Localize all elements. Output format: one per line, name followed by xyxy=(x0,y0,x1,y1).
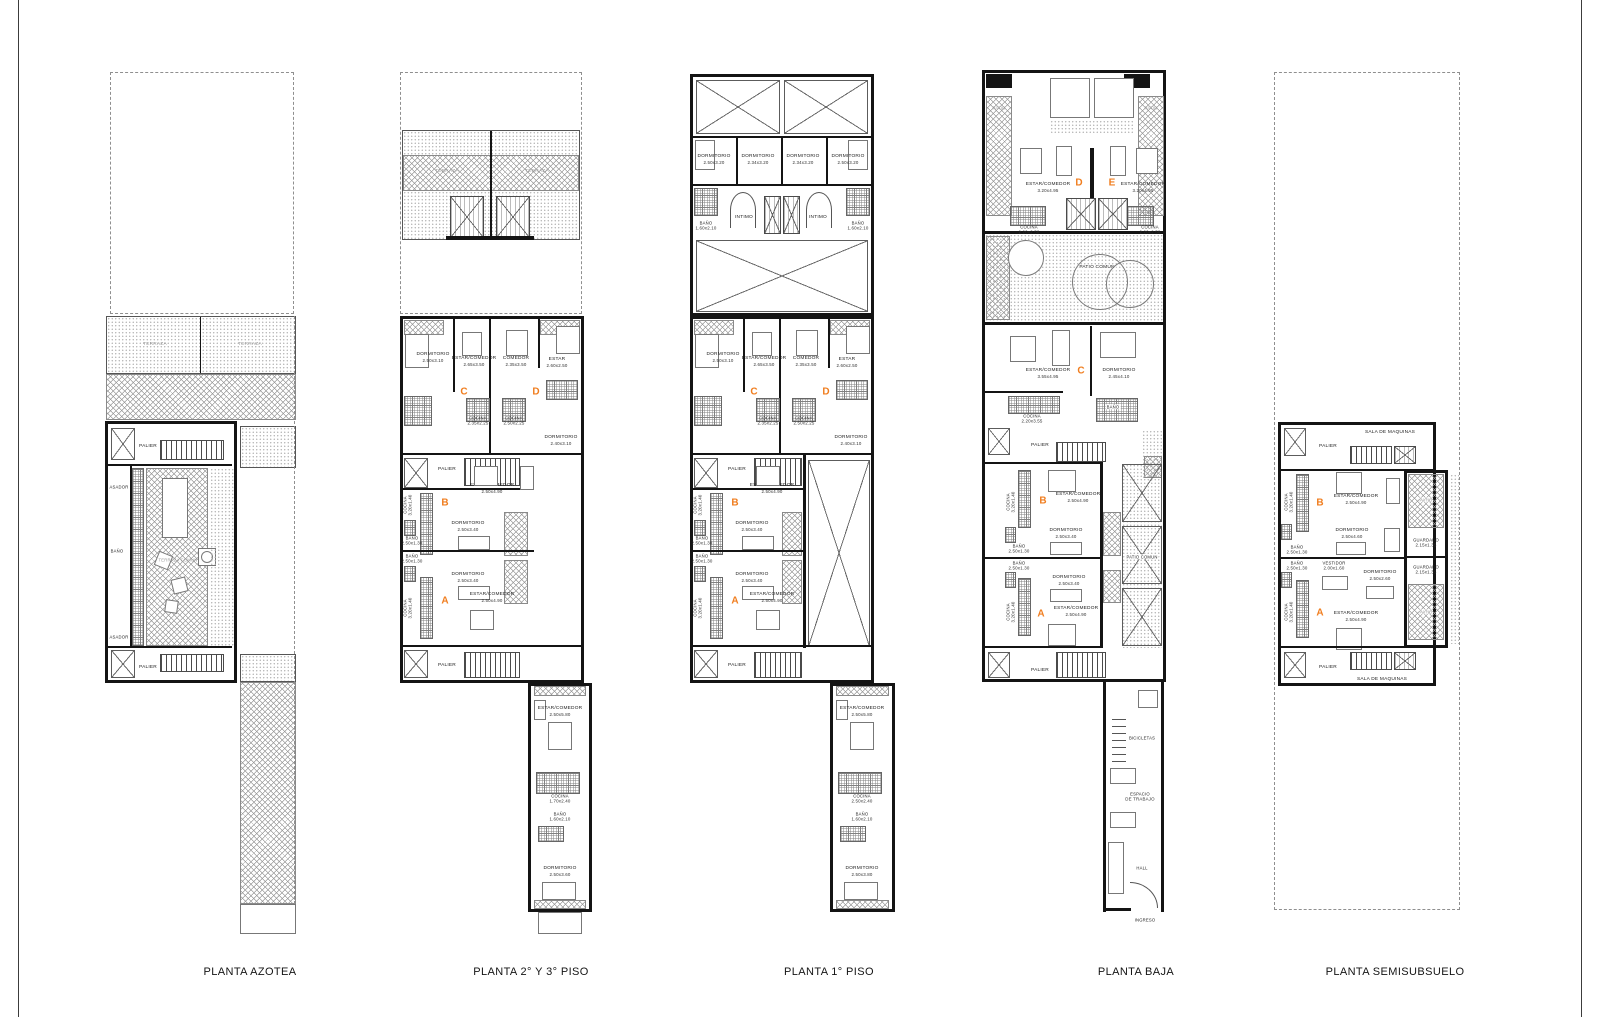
wall xyxy=(1103,682,1106,912)
room-label-patio: PATIO xyxy=(1420,609,1433,614)
room-label-patio: PATIO xyxy=(1420,497,1433,502)
unit-letter-c: C xyxy=(460,387,467,398)
bathroom-fixtures xyxy=(1281,572,1292,588)
room-label-terraza: TERRAZA xyxy=(143,342,167,348)
room-label-banio: BAÑO2.50x1.30 xyxy=(1008,543,1029,554)
room-label-dormitorio: DORMITORIO2.50x3.40 xyxy=(735,572,768,584)
bathroom-fixtures xyxy=(1096,398,1138,422)
furniture-table xyxy=(1048,624,1076,646)
bathroom-fixtures xyxy=(694,520,706,536)
room-label-estar-comedor: ESTAR/COMEDOR3.20x4.95 xyxy=(1121,182,1166,194)
room-label-banio: BAÑO1.60x2.10 xyxy=(695,220,716,231)
stair-core xyxy=(764,196,781,234)
room-label-palier: PALIER xyxy=(438,663,456,669)
pergola-brace xyxy=(1122,588,1162,646)
lightwell xyxy=(1094,78,1134,118)
stair-core xyxy=(1066,198,1096,230)
furniture-sofa xyxy=(1056,146,1072,176)
lightwell xyxy=(1050,78,1090,118)
kitchen-counter xyxy=(1296,474,1309,532)
room-label-palier: PALIER xyxy=(1031,443,1049,449)
room-label-cocina: COCINA2.35x2.25 xyxy=(467,415,488,426)
room-label-cocina: COCINA3.20x1.40 xyxy=(1005,601,1016,622)
lot-boundary xyxy=(110,72,294,314)
furniture-table xyxy=(1010,336,1036,362)
room-label-palier: PALIER xyxy=(438,467,456,473)
wall xyxy=(985,646,1102,648)
drawing-sheet: TERRAZA TERRAZA PALIER ASADOR BAÑO ASADO… xyxy=(0,0,1600,1017)
wall xyxy=(1161,682,1164,912)
tree xyxy=(1106,260,1154,308)
wall xyxy=(1281,557,1405,559)
room-label-banio: BAÑO1.60x2.10 xyxy=(851,811,872,822)
stairs xyxy=(464,652,520,678)
room-label-cocina: COCINA3.20x1.40 xyxy=(1283,601,1294,622)
room-label-dormitorio: DORMITORIO2.45x4.10 xyxy=(1102,368,1135,380)
elevator xyxy=(111,650,135,678)
curved-wall xyxy=(806,192,832,228)
room-label-dormitorio: DORMITORIO2.50x2.60 xyxy=(1363,570,1396,582)
room-label-banio: BAÑO2.50x1.30 xyxy=(691,535,712,546)
door-swing xyxy=(1130,882,1158,908)
unit-letter-d: D xyxy=(822,387,829,398)
bathroom-fixtures xyxy=(694,396,722,426)
balcony-hatch xyxy=(534,900,586,909)
wall xyxy=(446,236,534,240)
room-label-palier: PALIER xyxy=(728,467,746,473)
balcony-hatch xyxy=(694,320,734,335)
room-label-dormitorio: DORMITORIO2.50x3.40 xyxy=(451,521,484,533)
room-label-estar-comedor: ESTAR/COMEDOR2.50x4.90 xyxy=(750,592,795,604)
bathroom-fixtures xyxy=(546,380,578,400)
room-label-dormitorio: DORMITORIO2.50x3.10 xyxy=(706,352,739,364)
bathroom-fixtures xyxy=(836,380,868,400)
tree xyxy=(1008,240,1044,276)
room-label-dormitorio: DORMITORIO2.50x3.40 xyxy=(1049,528,1082,540)
room-label-dormitorio: DORMITORIO2.50x3.40 xyxy=(735,521,768,533)
elevator xyxy=(1284,428,1306,456)
kitchen-counter xyxy=(420,577,433,639)
room-label-cocina: COCINA3.20x1.40 xyxy=(692,597,703,618)
room-label-terraza: TERRAZA xyxy=(238,342,262,348)
hatch-region xyxy=(106,374,296,420)
kitchen-counter xyxy=(838,772,882,794)
stair-core xyxy=(1394,652,1416,670)
bathroom-fixtures xyxy=(694,188,718,216)
room-label-terraza: TERRAZA xyxy=(435,169,459,175)
furniture-table xyxy=(470,610,494,630)
wall xyxy=(985,462,1103,464)
room-label-asador: ASADOR xyxy=(110,634,129,639)
room-label-palier: PALIER xyxy=(139,665,157,671)
unit-letter-d: D xyxy=(1075,178,1082,189)
room-label-estar-comedor: ESTAR/COMEDOR2.50x4.90 xyxy=(1056,492,1101,504)
wall xyxy=(1281,646,1433,648)
room-label-patio-comun: PATIO COMUN xyxy=(1125,554,1158,559)
furniture-table xyxy=(1136,148,1158,174)
bathroom-fixtures xyxy=(694,566,706,582)
furniture-table xyxy=(796,330,818,356)
furniture-sofa xyxy=(556,326,580,354)
plan-title-baja: PLANTA BAJA xyxy=(1098,966,1174,978)
elevator xyxy=(111,428,135,460)
room-label-intimo: INTIMO xyxy=(735,215,753,221)
furniture-table xyxy=(548,722,572,750)
unit-letter-c: C xyxy=(1077,366,1084,377)
room-label-estar-comedor: ESTAR/COMEDOR2.50x4.90 xyxy=(470,592,515,604)
furniture-table xyxy=(474,466,498,486)
unit-letter-b: B xyxy=(1039,496,1046,507)
room-label-dormitorio: DORMITORIO2.50x3.40 xyxy=(1052,575,1085,587)
room-label-dormitorio: DORMITORIO2.50x3.20 xyxy=(697,154,730,166)
wall xyxy=(489,318,491,455)
lot-boundary xyxy=(294,316,295,904)
room-label-cocina: COCINA2.20x3.55 xyxy=(1021,413,1042,424)
room-label-cocina: COCINA3.20x1.40 xyxy=(692,494,703,515)
room-label-dormitorio: DORMITORIO2.50x3.20 xyxy=(831,154,864,166)
room-label-comedor: COMEDOR2.35x3.50 xyxy=(503,356,529,368)
elevator xyxy=(1284,652,1306,678)
room-label-guardado: GUARDADO2.15x1.35 xyxy=(1413,564,1439,575)
room-label-cocina: COCINA1.70x2.40 xyxy=(549,793,570,804)
bathroom-fixtures xyxy=(404,396,432,426)
room-label-estar-comedor: ESTAR/COMEDOR3.20x4.95 xyxy=(1026,182,1071,194)
room-label-palier: PALIER xyxy=(139,444,157,450)
furniture-table xyxy=(1336,472,1362,494)
room-label-banio: BAÑO2.50x1.30 xyxy=(401,553,422,564)
wall xyxy=(200,317,201,373)
room-label-patio: PATIO xyxy=(1145,105,1158,110)
room-label-cocina: COCINA3.20x1.40 xyxy=(1283,491,1294,512)
stairs xyxy=(160,654,224,672)
room-label-intimo: INTIMO xyxy=(809,215,827,221)
furniture-bed xyxy=(742,536,774,550)
bathroom-fixtures xyxy=(1005,572,1016,588)
wall xyxy=(692,550,804,552)
elevator xyxy=(694,458,718,488)
room-label-banio: BAÑO2.50x1.30 xyxy=(691,553,712,564)
wall xyxy=(108,646,232,648)
room-label-banio: BAÑO2.50x1.30 xyxy=(1286,544,1307,555)
room-label-bicicletas: BICICLETAS xyxy=(1129,735,1155,740)
room-label-cocina: COCINA3.20x1.40 xyxy=(402,494,413,515)
room-label-dormitorio: DORMITORIO2.34x3.20 xyxy=(741,154,774,166)
furniture-desk xyxy=(1138,690,1158,708)
wall xyxy=(985,557,1102,559)
furniture-bed xyxy=(1050,542,1082,555)
stair-core xyxy=(783,196,800,234)
wall xyxy=(828,318,830,368)
wall xyxy=(692,453,872,455)
stairs xyxy=(1350,446,1392,464)
furniture-table xyxy=(850,722,874,750)
wall xyxy=(402,645,582,647)
bathroom-fixtures xyxy=(846,188,870,216)
plan-title-piso-2-3: PLANTA 2° Y 3° PISO xyxy=(473,966,588,978)
service-box xyxy=(240,904,296,934)
wall xyxy=(1090,148,1094,202)
room-label-cocina: COCINA3.20x1.40 xyxy=(1005,491,1016,512)
roof-terrace xyxy=(240,654,296,682)
elevator xyxy=(404,458,428,488)
furniture-bed xyxy=(1336,542,1366,555)
furniture-table xyxy=(1020,148,1042,174)
kitchen-counter xyxy=(1018,578,1031,636)
furniture-table xyxy=(462,332,482,356)
patio-hatch xyxy=(986,96,1012,216)
furniture-table xyxy=(162,478,188,538)
balcony-hatch xyxy=(404,320,444,335)
room-label-dormitorio: DORMITORIO2.50x3.60 xyxy=(543,866,576,878)
furniture-table xyxy=(1048,470,1076,492)
void-double-height xyxy=(784,80,868,134)
wall xyxy=(538,318,540,368)
room-label-palier: PALIER xyxy=(1031,668,1049,674)
stairs xyxy=(1350,652,1392,670)
kitchen-counter xyxy=(1296,580,1309,638)
stairs xyxy=(754,652,802,678)
kitchen-counter xyxy=(1010,206,1046,226)
gravel-strip xyxy=(210,468,234,646)
furniture-sofa xyxy=(846,326,870,354)
furniture-bed xyxy=(542,882,576,900)
balcony-hatch xyxy=(534,686,586,696)
unit-letter-a: A xyxy=(1316,608,1323,619)
room-label-estar-comedor: ESTAR/COMEDOR2.50x4.90 xyxy=(1334,611,1379,623)
room-label-banio: BAÑO xyxy=(1106,404,1121,409)
room-label-estar-comedor: ESTAR/COMEDOR3.55x4.95 xyxy=(1026,368,1071,380)
furniture-bed xyxy=(1366,586,1394,599)
room-label-estar-comedor: ESTAR/COMEDOR2.50x5.80 xyxy=(840,706,885,718)
room-label-patio: PATIO xyxy=(993,105,1006,110)
room-label-banio: BAÑO2.50x1.30 xyxy=(401,535,422,546)
plan-title-semisubsuelo: PLANTA SEMISUBSUELO xyxy=(1326,966,1465,978)
furniture-sofa xyxy=(1386,478,1400,504)
room-label-ingreso: INGRESO xyxy=(1135,917,1156,922)
room-label-comedor: COMEDOR2.35x3.50 xyxy=(793,356,819,368)
wall xyxy=(402,550,534,552)
wall xyxy=(108,464,232,466)
unit-letter-d: D xyxy=(532,387,539,398)
room-label-dormitorio: DORMITORIO2.50x3.80 xyxy=(845,866,878,878)
furniture-table xyxy=(756,466,780,486)
wall xyxy=(1163,234,1166,322)
room-label-guardado: GUARDADO2.15x1.35 xyxy=(1413,537,1439,548)
wall xyxy=(781,138,783,184)
wall xyxy=(693,184,871,186)
furniture-table xyxy=(506,330,528,356)
closet xyxy=(1322,576,1348,590)
stair-core xyxy=(1098,198,1128,230)
roof-terrace xyxy=(240,426,296,468)
furniture-bed xyxy=(1100,332,1136,358)
stairs xyxy=(160,440,224,460)
void-double-height xyxy=(696,80,780,134)
wall xyxy=(826,138,828,184)
room-label-cocina: COCINA3.20x1.40 xyxy=(402,597,413,618)
stair-core xyxy=(1394,446,1416,464)
void-double-height xyxy=(696,240,868,312)
room-label-palier: PALIER xyxy=(728,663,746,669)
unit-letter-e: E xyxy=(1109,178,1116,189)
room-label-sala-maquinas: SALA DE MAQUINAS xyxy=(1357,677,1407,683)
balcony-hatch xyxy=(836,686,889,696)
balcony-hatch xyxy=(1103,570,1121,603)
elevator xyxy=(988,652,1010,678)
balcony-hatch xyxy=(1103,512,1121,556)
furniture-bed xyxy=(844,882,878,900)
furniture-desk xyxy=(1384,528,1400,552)
room-label-cocina: COCINA2.35x2.25 xyxy=(757,415,778,426)
wall xyxy=(692,645,872,647)
room-label-palier: PALIER xyxy=(1319,444,1337,450)
room-label-asador: ASADOR xyxy=(110,484,129,489)
wall xyxy=(986,74,1012,88)
sheet-right-edge xyxy=(1581,0,1582,1017)
balcony-hatch xyxy=(836,900,889,909)
room-label-cocina: COCINA2.50x2.25 xyxy=(503,415,524,426)
elevator xyxy=(988,428,1010,455)
bathroom-fixtures xyxy=(1005,527,1016,543)
sheet-left-edge xyxy=(18,0,19,1017)
room-label-palier: PALIER xyxy=(1319,665,1337,671)
wall xyxy=(402,453,582,455)
room-label-estar: ESTAR2.60x2.50 xyxy=(546,357,567,369)
room-label-espacio-trabajo: ESPACIODE TRABAJO xyxy=(1125,791,1155,802)
room-label-dormitorio: DORMITORIO2.40x3.10 xyxy=(544,435,577,447)
wall xyxy=(985,391,1063,393)
wall xyxy=(736,138,738,184)
unit-letter-c: C xyxy=(750,387,757,398)
closet xyxy=(1108,842,1124,894)
pergola-brace xyxy=(1122,464,1162,522)
furniture-table xyxy=(756,610,780,630)
room-label-terraza-comun: TERRAZA COMUN xyxy=(159,557,198,562)
room-label-banio: BAÑO1.60x2.10 xyxy=(549,811,570,822)
service-box xyxy=(538,912,582,934)
asador-counter xyxy=(132,468,144,646)
unit-letter-a: A xyxy=(1037,609,1044,620)
furniture-desk xyxy=(1110,768,1136,784)
plan-title-azotea: PLANTA AZOTEA xyxy=(203,966,296,978)
wall xyxy=(1103,908,1131,911)
gravel-strip xyxy=(1450,474,1459,644)
room-label-estar: ESTAR2.60x2.50 xyxy=(836,357,857,369)
room-label-dormitorio: DORMITORIO2.50x3.10 xyxy=(416,352,449,364)
room-label-dormitorio: DORMITORIO2.50x3.40 xyxy=(451,572,484,584)
furniture-table xyxy=(752,332,772,356)
room-label-sala-maquinas: SALA DE MAQUINAS xyxy=(1365,430,1415,436)
plan-title-piso-1: PLANTA 1° PISO xyxy=(784,966,874,978)
furniture-sofa xyxy=(1110,146,1126,176)
room-label-estar-comedor: ESTAR/COMEDOR2.50x5.80 xyxy=(538,706,583,718)
furniture-sofa xyxy=(520,466,534,490)
kitchen-counter xyxy=(1008,396,1060,414)
room-label-banio: BAÑO xyxy=(111,548,124,553)
wall xyxy=(1281,469,1433,471)
roof-terrace xyxy=(106,316,296,374)
curved-wall xyxy=(730,192,756,228)
room-label-estar-comedor: ESTAR/COMEDOR2.50x4.90 xyxy=(1334,494,1379,506)
stair-core xyxy=(450,196,484,238)
wall xyxy=(490,131,492,239)
room-label-banio: BAÑO2.50x1.30 xyxy=(1286,560,1307,571)
room-label-dormitorio: DORMITORIO2.50x4.60 xyxy=(1335,528,1368,540)
bathroom-fixtures xyxy=(1281,524,1292,540)
wall xyxy=(779,318,781,455)
room-label-banio: BAÑO2.50x1.30 xyxy=(1008,560,1029,571)
bathroom-fixtures xyxy=(538,826,564,842)
wall xyxy=(1406,556,1446,558)
bathroom-fixtures xyxy=(404,566,416,582)
room-label-hall: HALL xyxy=(1136,865,1147,870)
room-label-terraza: TERRAZA xyxy=(525,169,549,175)
elevator xyxy=(404,650,428,678)
unit-letter-b: B xyxy=(441,498,448,509)
furniture-table xyxy=(164,599,179,614)
wall xyxy=(453,318,455,392)
furniture-sofa xyxy=(1052,330,1070,366)
room-label-vestidor: VESTIDOR2.00x1.60 xyxy=(1322,560,1345,571)
stair-core xyxy=(496,196,530,238)
bike-rack xyxy=(1112,714,1126,762)
elevator xyxy=(694,650,718,678)
unit-letter-a: A xyxy=(441,596,448,607)
furniture-bed xyxy=(1050,589,1082,602)
kitchen-counter xyxy=(1018,470,1031,528)
unit-letter-a: A xyxy=(731,596,738,607)
gravel-strip xyxy=(1050,120,1134,134)
room-label-dormitorio: DORMITORIO2.40x3.10 xyxy=(834,435,867,447)
wall xyxy=(1090,326,1092,396)
furniture-bed xyxy=(458,536,490,550)
room-label-banio: BAÑO1.60x2.10 xyxy=(847,220,868,231)
room-label-dormitorio: DORMITORIO2.34x3.20 xyxy=(786,154,819,166)
kitchen-counter xyxy=(536,772,580,794)
room-label-cocina: COCINA2.50x2.25 xyxy=(793,415,814,426)
hatch-strip xyxy=(240,682,296,904)
stairs xyxy=(1056,442,1106,462)
void-over-patio xyxy=(808,460,870,646)
wall xyxy=(743,318,745,392)
room-label-estar-comedor: ESTAR/COMEDOR2.50x4.90 xyxy=(1054,606,1099,618)
bathroom-fixtures xyxy=(404,520,416,536)
unit-letter-b: B xyxy=(731,498,738,509)
stairs xyxy=(1056,652,1106,678)
patio-hatch xyxy=(986,236,1010,320)
bathroom-fixtures xyxy=(840,826,866,842)
unit-letter-b: B xyxy=(1316,498,1323,509)
room-label-cocina: COCINA2.50x2.40 xyxy=(851,793,872,804)
furniture-desk xyxy=(1110,812,1136,828)
kitchen-counter xyxy=(710,577,723,639)
